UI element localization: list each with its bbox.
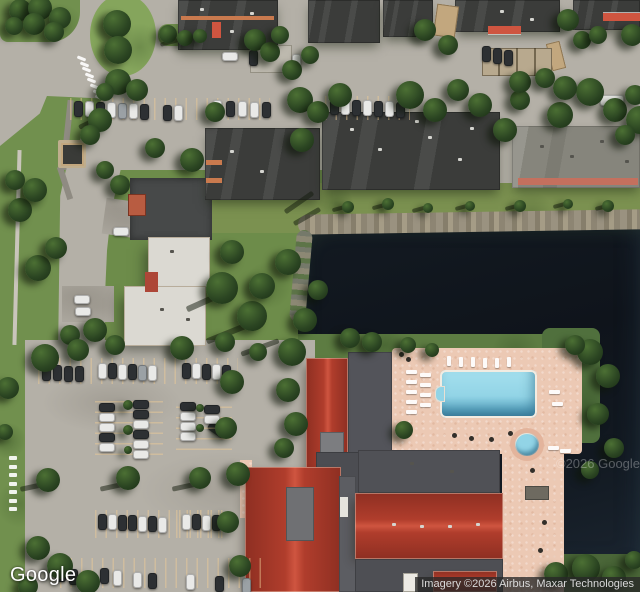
lounge-chair: [406, 370, 417, 374]
tree-canopy: [589, 26, 607, 44]
tree-canopy: [124, 446, 132, 454]
tree-canopy: [274, 438, 294, 458]
tree-canopy: [23, 178, 47, 202]
tree-canopy: [123, 425, 133, 435]
tree-canopy: [170, 336, 194, 360]
parked-car: [74, 295, 90, 304]
deck-item: [469, 436, 474, 441]
tree-canopy: [301, 46, 319, 64]
parked-car: [64, 366, 73, 382]
parked-car: [108, 514, 117, 530]
parked-car: [98, 363, 107, 379]
tree-canopy: [425, 343, 439, 357]
tree-canopy: [382, 198, 394, 210]
lounge-chair: [406, 380, 417, 384]
crosswalk-dash: [9, 507, 17, 511]
tree-canopy: [465, 201, 475, 211]
tree-canopy: [145, 138, 165, 158]
parked-car: [242, 578, 251, 592]
tree-canopy: [116, 466, 140, 490]
parked-car: [138, 516, 147, 532]
tree-canopy: [284, 412, 308, 436]
parked-car: [118, 364, 127, 380]
deck-item: [508, 431, 513, 436]
lounge-chair: [471, 357, 475, 367]
parked-car: [99, 443, 115, 452]
tree-canopy: [237, 301, 267, 331]
lounge-chair: [420, 403, 431, 407]
lounge-chair: [507, 357, 511, 367]
roof-vent: [350, 128, 354, 131]
parked-car: [100, 568, 109, 584]
tree-canopy: [328, 83, 352, 107]
tree-canopy: [206, 272, 238, 304]
parked-car: [250, 102, 259, 118]
tree-canopy: [604, 438, 624, 458]
tree-canopy: [220, 240, 244, 264]
parked-car: [128, 364, 137, 380]
crosswalk-dash: [77, 55, 86, 61]
tree-canopy: [67, 339, 89, 361]
tree-canopy: [220, 370, 244, 394]
tree-canopy: [576, 78, 604, 106]
tree-canopy: [535, 68, 555, 88]
parked-car: [180, 412, 196, 421]
roof-vent: [458, 158, 462, 161]
tree-canopy: [625, 551, 640, 569]
parked-car: [202, 364, 211, 380]
parked-car: [129, 103, 138, 119]
tree-canopy: [395, 421, 413, 439]
tree-canopy: [196, 424, 204, 432]
tree-canopy: [342, 201, 354, 213]
tree-canopy: [205, 102, 225, 122]
tree-canopy: [196, 404, 204, 412]
tree-canopy: [123, 400, 133, 410]
roof-vent: [450, 470, 454, 473]
tree-canopy: [603, 98, 627, 122]
deck-item: [530, 468, 535, 473]
tree-canopy: [293, 308, 317, 332]
tree-canopy: [423, 203, 433, 213]
tree-canopy: [126, 79, 148, 101]
tree-canopy: [423, 98, 447, 122]
crosswalk-dash: [9, 465, 17, 469]
tree-canopy: [5, 170, 25, 190]
tree-canopy: [271, 26, 289, 44]
tree-canopy: [103, 10, 131, 38]
parked-car: [385, 101, 394, 117]
parked-car: [215, 576, 224, 592]
parked-car: [99, 413, 115, 422]
parked-car: [482, 46, 491, 62]
parked-car: [99, 433, 115, 442]
crosswalk-dash: [9, 482, 17, 486]
roof-vent: [530, 18, 534, 21]
parked-car: [262, 102, 271, 118]
tree-canopy: [36, 468, 60, 492]
parked-car: [113, 570, 122, 586]
parked-car: [74, 101, 83, 117]
parked-car: [174, 105, 183, 121]
parked-car: [98, 514, 107, 530]
tree-canopy: [180, 148, 204, 172]
parked-car: [148, 516, 157, 532]
roof-vent: [476, 523, 480, 526]
parked-car: [363, 100, 372, 116]
tree-canopy: [615, 125, 635, 145]
roof-vent: [500, 10, 504, 13]
lounge-chair: [495, 358, 499, 368]
parked-car: [182, 363, 191, 379]
parked-car: [504, 50, 513, 66]
tree-canopy: [557, 9, 579, 31]
lounge-chair: [560, 449, 571, 453]
tree-canopy: [177, 30, 193, 46]
roof-vent: [428, 136, 432, 139]
tree-canopy: [44, 22, 64, 42]
tree-canopy: [226, 462, 250, 486]
deck-item: [538, 548, 543, 553]
parked-car: [182, 514, 191, 530]
tree-canopy: [509, 71, 531, 93]
roof-vent: [392, 523, 396, 526]
parked-car: [133, 400, 149, 409]
lounge-chair: [447, 356, 451, 366]
parked-car: [133, 572, 142, 588]
parked-car: [249, 50, 258, 66]
tree-canopy: [260, 42, 280, 62]
roof-vent: [250, 12, 254, 15]
tree-canopy: [282, 60, 302, 80]
tree-canopy: [215, 417, 237, 439]
tree-canopy: [553, 76, 577, 100]
parked-car: [180, 402, 196, 411]
tree-canopy: [307, 101, 329, 123]
tree-canopy: [0, 377, 19, 399]
tree-canopy: [565, 335, 585, 355]
lounge-chair: [459, 357, 463, 367]
roof-vent: [625, 160, 629, 163]
tree-canopy: [563, 199, 573, 209]
deck-item: [542, 520, 547, 525]
parked-car: [118, 515, 127, 531]
tree-canopy: [602, 200, 614, 212]
tree-canopy: [596, 364, 620, 388]
tree-canopy: [493, 118, 517, 142]
satellite-map-canvas[interactable]: ©2026 Google Google Imagery ©2026 Airbus…: [0, 0, 640, 592]
tree-canopy: [96, 161, 114, 179]
tree-canopy: [308, 280, 328, 300]
tree-canopy: [278, 338, 306, 366]
roof-vent: [540, 145, 544, 148]
parked-car: [192, 514, 201, 530]
parked-car: [186, 574, 195, 590]
tree-canopy: [0, 424, 13, 440]
parked-car: [133, 440, 149, 449]
parked-car: [140, 104, 149, 120]
deck-item: [406, 357, 411, 362]
parked-car: [113, 227, 129, 236]
tree-canopy: [229, 555, 251, 577]
lounge-chair: [549, 390, 560, 394]
roof-vent: [420, 525, 424, 528]
tree-canopy: [5, 17, 23, 35]
parked-car: [158, 517, 167, 533]
deck-item: [489, 437, 494, 442]
roof-vent: [448, 525, 452, 528]
tree-canopy: [31, 344, 59, 372]
tree-canopy: [159, 25, 177, 43]
tree-canopy: [249, 343, 267, 361]
parked-car: [133, 430, 149, 439]
crosswalk-dash: [9, 473, 17, 477]
parked-car: [75, 307, 91, 316]
tree-canopy: [276, 378, 300, 402]
roof-vent: [600, 140, 604, 143]
lounge-chair: [406, 410, 417, 414]
tree-canopy: [193, 29, 207, 43]
lounge-chair: [420, 383, 431, 387]
roof-vent: [230, 30, 234, 33]
tree-canopy: [414, 19, 436, 41]
roof-vent: [260, 170, 264, 173]
parked-car: [133, 450, 149, 459]
roof-vent: [200, 8, 204, 11]
parked-car: [148, 573, 157, 589]
tree-canopy: [468, 93, 492, 117]
tree-canopy: [26, 536, 50, 560]
parked-car: [202, 515, 211, 531]
imagery-attribution[interactable]: Imagery ©2026 Airbus, Maxar Technologies: [415, 577, 640, 592]
tree-canopy: [625, 85, 640, 105]
google-logo: Google: [10, 564, 76, 587]
tree-canopy: [514, 200, 526, 212]
parked-car: [352, 100, 361, 116]
tree-canopy: [104, 36, 132, 64]
roof-vent: [570, 155, 574, 158]
lounge-chair: [483, 358, 487, 368]
parked-car: [128, 515, 137, 531]
parked-car: [163, 105, 172, 121]
deck-item: [399, 352, 404, 357]
parked-car: [192, 363, 201, 379]
parked-car: [180, 422, 196, 431]
tree-canopy: [23, 13, 45, 35]
parked-car: [222, 52, 238, 61]
parked-car: [493, 48, 502, 64]
tree-canopy: [510, 90, 530, 110]
parked-car: [238, 101, 247, 117]
tree-canopy: [400, 337, 416, 353]
parked-car: [75, 366, 84, 382]
lounge-chair: [420, 373, 431, 377]
parked-car: [99, 403, 115, 412]
tree-canopy: [189, 467, 211, 489]
tree-canopy: [621, 24, 640, 46]
crosswalk-dash: [9, 490, 17, 494]
roof-vent: [415, 120, 419, 123]
crosswalk-dash: [9, 456, 17, 460]
lounge-chair: [552, 402, 563, 406]
parked-car: [204, 405, 220, 414]
tree-canopy: [96, 83, 114, 101]
lounge-chair: [406, 400, 417, 404]
lounge-chair: [420, 393, 431, 397]
tree-canopy: [547, 102, 573, 128]
parked-car: [374, 101, 383, 117]
tree-canopy: [80, 125, 100, 145]
scene-layer: [0, 0, 640, 592]
tree-canopy: [105, 335, 125, 355]
roof-vent: [230, 150, 234, 153]
tree-canopy: [83, 318, 107, 342]
tree-canopy: [45, 237, 67, 259]
lounge-chair: [406, 390, 417, 394]
tree-shadow-streak: [293, 207, 321, 226]
parked-car: [180, 432, 196, 441]
parked-car: [148, 365, 157, 381]
tree-canopy: [587, 403, 609, 425]
tree-canopy: [249, 273, 275, 299]
tree-canopy: [438, 35, 458, 55]
parked-car: [99, 423, 115, 432]
roof-vent: [470, 127, 474, 130]
parked-car: [226, 101, 235, 117]
tree-canopy: [215, 332, 235, 352]
tree-canopy: [396, 81, 424, 109]
roof-vent: [160, 308, 164, 311]
tree-canopy: [217, 511, 239, 533]
parked-car: [133, 410, 149, 419]
parked-car: [108, 363, 117, 379]
tree-canopy: [25, 255, 51, 281]
tree-canopy: [290, 128, 314, 152]
tree-canopy: [76, 570, 100, 592]
tree-canopy: [447, 79, 469, 101]
roof-vent: [378, 148, 382, 151]
tree-canopy: [8, 198, 32, 222]
tree-canopy: [340, 328, 360, 348]
parked-car: [138, 365, 147, 381]
tree-canopy: [110, 175, 130, 195]
deck-item: [452, 433, 457, 438]
tree-canopy: [275, 249, 301, 275]
roof-vent: [186, 318, 190, 321]
tree-canopy: [362, 332, 382, 352]
google-watermark: ©2026 Google: [556, 456, 640, 471]
roof-vent: [410, 462, 414, 465]
lounge-chair: [548, 446, 559, 450]
roof-vent: [170, 250, 174, 253]
parked-car: [133, 420, 149, 429]
crosswalk-dash: [9, 499, 17, 503]
parked-car: [118, 103, 127, 119]
